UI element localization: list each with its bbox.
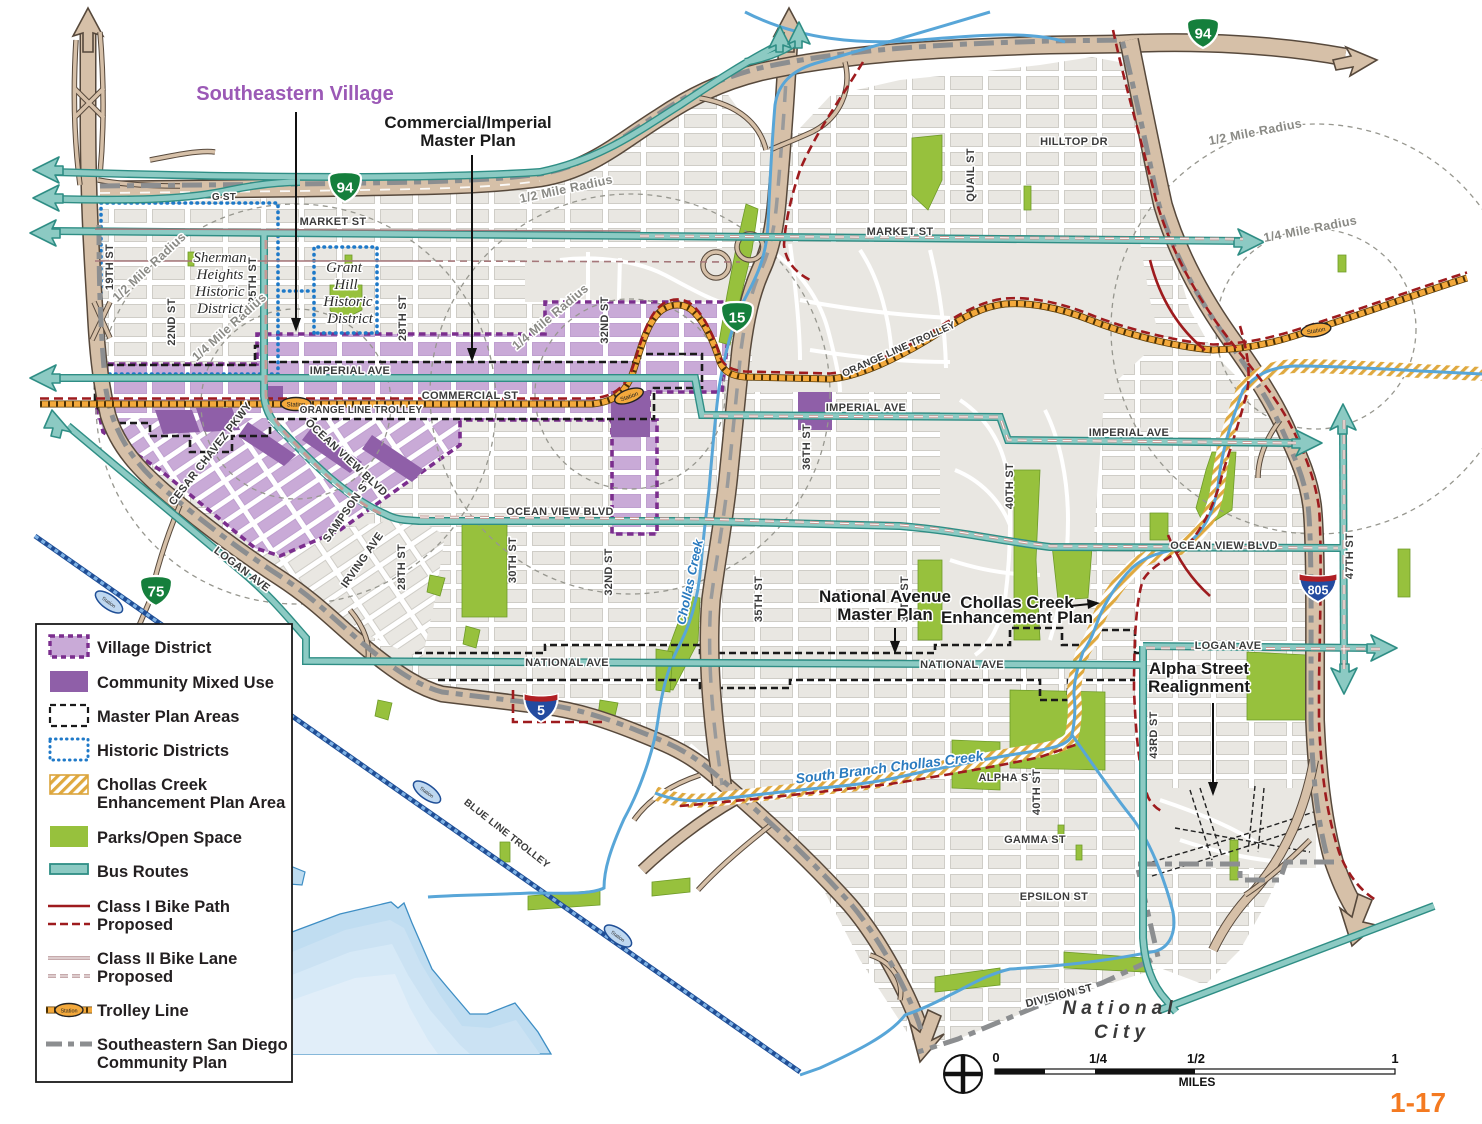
svg-text:Station: Station <box>60 1009 77 1015</box>
svg-text:NATIONAL AVE: NATIONAL AVE <box>920 659 1004 671</box>
svg-text:Proposed: Proposed <box>97 968 173 986</box>
svg-text:Historic Districts: Historic Districts <box>97 742 229 760</box>
svg-text:Proposed: Proposed <box>97 916 173 934</box>
svg-text:District: District <box>326 311 374 327</box>
svg-text:NATIONAL AVE: NATIONAL AVE <box>525 657 609 669</box>
svg-text:Class II Bike Lane: Class II Bike Lane <box>97 950 237 968</box>
svg-text:Parks/Open Space: Parks/Open Space <box>97 829 242 847</box>
svg-text:Chollas Creek: Chollas Creek <box>97 776 208 794</box>
svg-text:OCEAN VIEW BLVD: OCEAN VIEW BLVD <box>1170 540 1278 552</box>
svg-text:District: District <box>196 301 244 317</box>
svg-text:36TH ST: 36TH ST <box>801 424 813 470</box>
svg-text:40TH ST: 40TH ST <box>1031 769 1043 815</box>
svg-text:GAMMA ST: GAMMA ST <box>1004 834 1066 846</box>
svg-text:32ND ST: 32ND ST <box>599 296 611 343</box>
svg-text:Historic: Historic <box>194 284 245 300</box>
svg-text:ALPHA ST: ALPHA ST <box>979 772 1036 784</box>
svg-text:Enhancement Plan: Enhancement Plan <box>941 608 1093 627</box>
svg-text:Alpha Street: Alpha Street <box>1149 659 1249 678</box>
svg-text:5: 5 <box>537 702 545 718</box>
svg-text:1/2: 1/2 <box>1187 1051 1205 1066</box>
svg-text:1: 1 <box>1391 1051 1398 1066</box>
svg-text:IMPERIAL AVE: IMPERIAL AVE <box>310 365 390 377</box>
svg-text:Realignment: Realignment <box>1148 677 1250 696</box>
svg-text:HILLTOP DR: HILLTOP DR <box>1040 136 1108 148</box>
svg-text:Enhancement Plan Area: Enhancement Plan Area <box>97 794 286 812</box>
svg-text:35TH ST: 35TH ST <box>753 576 765 622</box>
svg-text:15: 15 <box>729 310 746 327</box>
svg-text:Southeastern San Diego: Southeastern San Diego <box>97 1036 288 1054</box>
svg-text:0: 0 <box>992 1050 999 1065</box>
svg-text:National Avenue: National Avenue <box>819 587 951 606</box>
svg-text:Southeastern Village: Southeastern Village <box>196 83 393 105</box>
svg-text:Trolley Line: Trolley Line <box>97 1002 189 1020</box>
svg-text:40TH ST: 40TH ST <box>1004 463 1016 509</box>
svg-text:Sherman: Sherman <box>193 250 246 266</box>
svg-text:Bus Routes: Bus Routes <box>97 863 189 881</box>
svg-text:LOGAN AVE: LOGAN AVE <box>1195 640 1262 652</box>
svg-text:QUAIL ST: QUAIL ST <box>965 148 977 202</box>
svg-text:Heights: Heights <box>196 267 244 283</box>
svg-text:43RD ST: 43RD ST <box>1148 711 1160 758</box>
svg-text:47TH ST: 47TH ST <box>1344 533 1356 579</box>
svg-text:94: 94 <box>1195 26 1212 43</box>
svg-text:ORANGE LINE TROLLEY: ORANGE LINE TROLLEY <box>300 405 423 416</box>
svg-text:IMPERIAL AVE: IMPERIAL AVE <box>1089 427 1169 439</box>
svg-text:Community Mixed Use: Community Mixed Use <box>97 674 274 692</box>
svg-text:G ST: G ST <box>212 192 236 203</box>
svg-text:Village District: Village District <box>97 639 212 657</box>
svg-text:MILES: MILES <box>1179 1075 1216 1089</box>
svg-text:Grant: Grant <box>326 260 363 276</box>
svg-text:IMPERIAL AVE: IMPERIAL AVE <box>826 402 906 414</box>
svg-text:19TH ST: 19TH ST <box>104 244 116 290</box>
svg-text:28TH ST: 28TH ST <box>396 544 408 590</box>
svg-text:OCEAN VIEW BLVD: OCEAN VIEW BLVD <box>506 506 614 518</box>
svg-text:EPSILON ST: EPSILON ST <box>1020 891 1088 903</box>
svg-text:MARKET ST: MARKET ST <box>300 216 367 228</box>
svg-text:MARKET ST: MARKET ST <box>867 226 934 238</box>
svg-text:National: National <box>1063 998 1178 1019</box>
svg-text:Commercial/Imperial: Commercial/Imperial <box>384 113 551 132</box>
svg-text:City: City <box>1094 1022 1150 1043</box>
svg-text:32ND ST: 32ND ST <box>603 548 615 595</box>
svg-text:28TH ST: 28TH ST <box>397 295 409 341</box>
svg-text:Hill: Hill <box>333 277 357 293</box>
svg-text:1/4: 1/4 <box>1089 1051 1108 1066</box>
svg-text:COMMERCIAL ST: COMMERCIAL ST <box>422 390 519 402</box>
svg-text:94: 94 <box>337 180 354 197</box>
svg-text:805: 805 <box>1308 584 1329 598</box>
svg-text:1-17: 1-17 <box>1390 1087 1446 1118</box>
svg-text:30TH ST: 30TH ST <box>507 537 519 583</box>
svg-text:Community Plan: Community Plan <box>97 1054 227 1072</box>
svg-text:75: 75 <box>148 584 165 601</box>
svg-text:Historic: Historic <box>322 294 373 310</box>
svg-text:Master Plan Areas: Master Plan Areas <box>97 708 239 726</box>
svg-text:22ND ST: 22ND ST <box>166 298 178 345</box>
svg-text:Master Plan: Master Plan <box>837 605 932 624</box>
svg-text:Class I Bike Path: Class I Bike Path <box>97 898 230 916</box>
svg-text:Master Plan: Master Plan <box>420 131 515 150</box>
